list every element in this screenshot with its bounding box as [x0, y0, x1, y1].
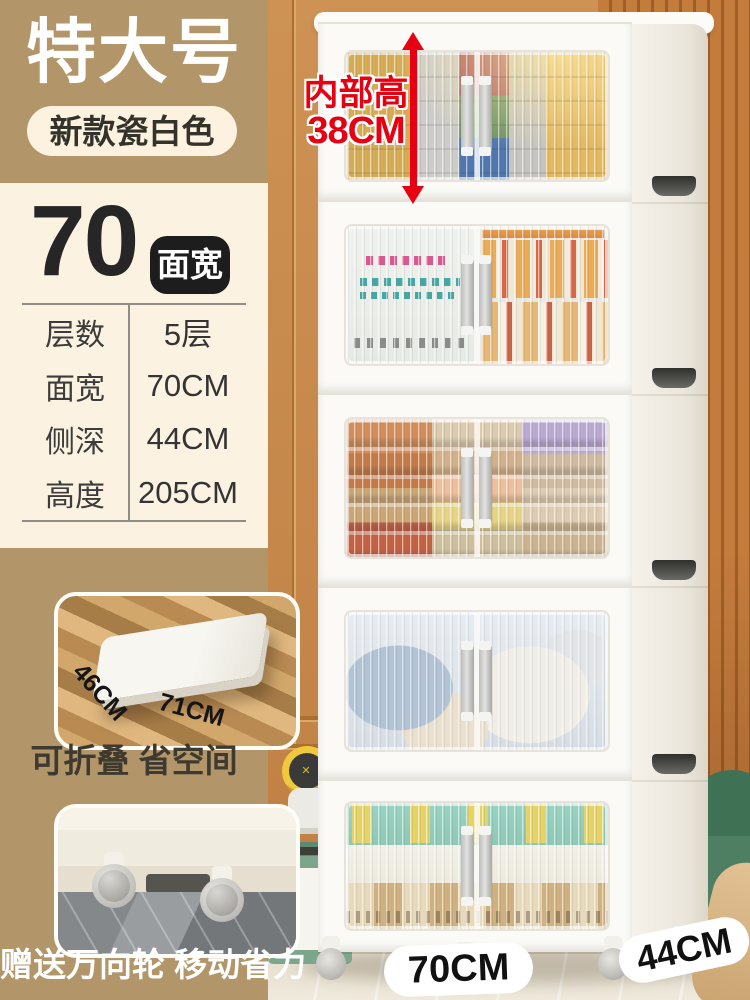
- spec-card: 70 面宽 层数 5层 面宽 70CM 侧深 44CM 高度 205CM: [0, 183, 268, 548]
- spec-row: 侧深 44CM: [22, 413, 246, 467]
- product-photo: ✕: [268, 0, 750, 1000]
- spec-value: 44CM: [130, 421, 246, 457]
- tier-handle: [459, 450, 495, 526]
- spec-value: 70CM: [130, 368, 246, 404]
- spec-label: 侧深: [22, 413, 130, 467]
- spec-row: 面宽 70CM: [22, 359, 246, 413]
- fold-feature-caption: 可折叠 省空间: [0, 734, 268, 782]
- product-size-title: 特大号: [26, 10, 242, 94]
- fold-feature-photo: 46CM 71CM: [54, 592, 300, 750]
- spec-width-unit-badge: 面宽: [150, 236, 230, 294]
- tier-window-books: [344, 801, 610, 931]
- caster-wheel: [92, 852, 136, 912]
- cabinet-wheel: [316, 936, 346, 984]
- cabinet-tier-4: [318, 586, 632, 781]
- caster-wheel: [200, 866, 244, 926]
- spec-width-number: 70: [30, 191, 137, 291]
- front-width-pill: 70CM: [383, 941, 534, 997]
- tier-handle: [459, 643, 495, 719]
- wheel-feature-photo: [54, 804, 300, 958]
- arrow-down-head: [402, 186, 424, 204]
- color-variant-badge: 新款瓷白色: [27, 106, 237, 156]
- tier-window-plush: [344, 610, 610, 752]
- spec-label: 面宽: [22, 359, 130, 413]
- side-grip-handle: [652, 560, 696, 580]
- inner-height-annotation: 内部高 38CM: [294, 76, 418, 150]
- spec-value: 205CM: [130, 475, 246, 511]
- tier-window-snacks: [344, 224, 610, 366]
- spec-row: 高度 205CM: [22, 466, 246, 520]
- arrow-shaft: [410, 44, 417, 192]
- spec-label: 高度: [22, 466, 130, 520]
- folded-cabinet: [92, 612, 268, 703]
- tier-handle: [459, 828, 495, 904]
- folded-width-label: 71CM: [155, 688, 227, 733]
- side-grip-handle: [652, 754, 696, 774]
- cabinet-tier-2: [318, 200, 632, 395]
- inner-height-text: 内部高: [294, 76, 418, 112]
- cabinet-side-panel: [628, 24, 708, 952]
- storage-cabinet: [318, 22, 632, 952]
- tier-window-towels: [344, 417, 610, 559]
- spec-label: 层数: [22, 305, 130, 359]
- inner-height-value: 38CM: [294, 112, 418, 150]
- cabinet-tier-5: [318, 779, 632, 954]
- inner-height-arrow: [402, 32, 424, 204]
- cabinet-tier-3: [318, 393, 632, 588]
- wheel-feature-caption: 赠送万向轮 移动省力: [0, 938, 268, 986]
- side-grip-handle: [652, 368, 696, 388]
- spec-value: 5层: [130, 309, 246, 354]
- spec-table: 层数 5层 面宽 70CM 侧深 44CM 高度 205CM: [22, 303, 246, 522]
- spec-row: 层数 5层: [22, 305, 246, 359]
- tier-handle: [459, 78, 495, 154]
- tier-handle: [459, 257, 495, 333]
- side-grip-handle: [652, 176, 696, 196]
- page: 特大号 新款瓷白色 70 面宽 层数 5层 面宽 70CM 侧深 44CM: [0, 0, 750, 1000]
- left-info-panel: 特大号 新款瓷白色 70 面宽 层数 5层 面宽 70CM 侧深 44CM: [0, 0, 268, 1000]
